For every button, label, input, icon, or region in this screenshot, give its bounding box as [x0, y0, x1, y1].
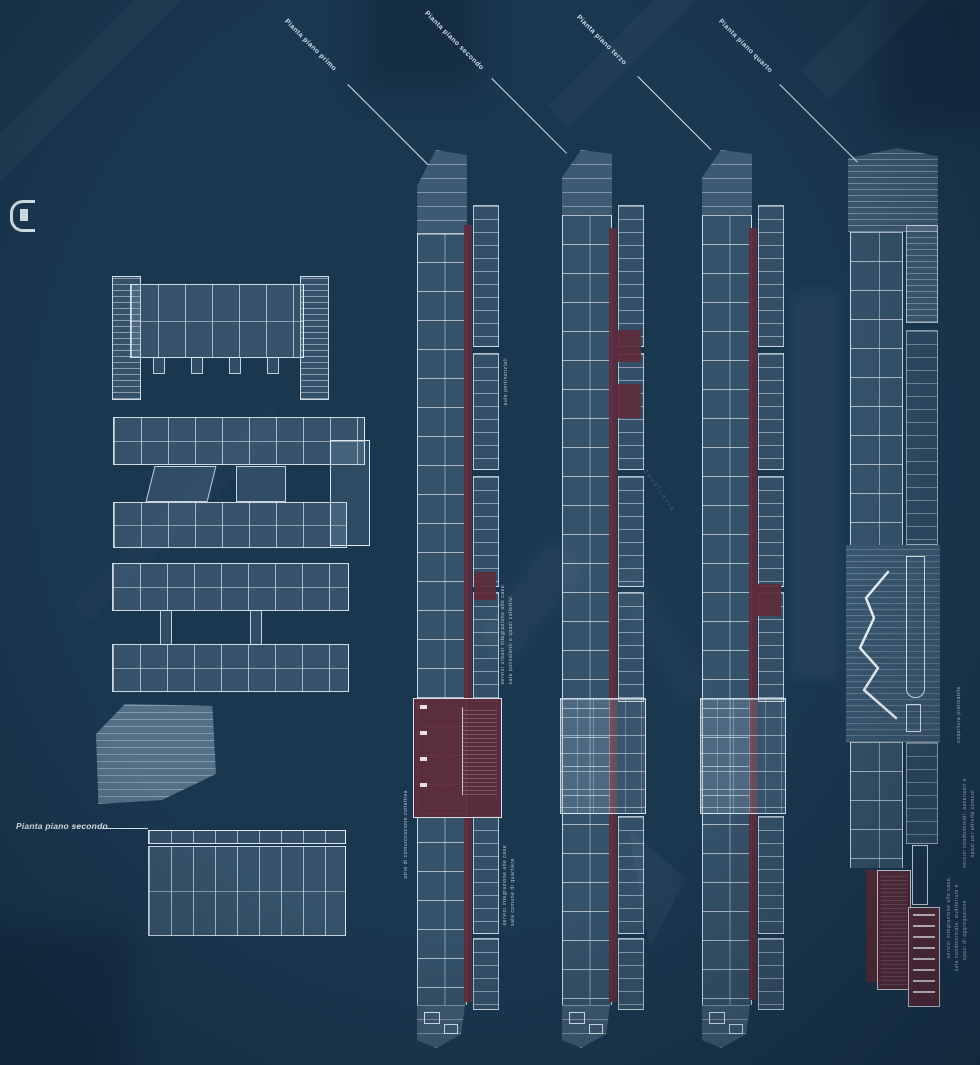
- annotation-roof: copertura praticabile: [956, 686, 962, 743]
- annotation-plan1-upper: aule pertinenziali: [503, 358, 509, 405]
- annotation-plan1-lower-line1: servizi integrazione alle case:: [502, 843, 508, 925]
- annotation-plan4-lower-line3: spazi di aggregazione: [962, 900, 968, 960]
- annotation-plan4-mid-line2: spazi per attività comuni: [970, 790, 976, 857]
- overlay-lines: [0, 0, 980, 1065]
- annotation-plan4-lower-line1: servizi integrazione alle case:: [946, 876, 952, 958]
- annotation-plan1-mid-line1: servizi urbani integrazione alle case:: [500, 583, 506, 685]
- annotation-plan4-lower-line2: sala condominiale, auditorium e: [954, 884, 960, 971]
- annotation-plan1-mid-line2: sale polivalenti e spazi collettivi: [508, 596, 514, 684]
- annotation-plan1-left: atrio di comunicazione collettiva: [403, 790, 409, 879]
- annotation-plan1-lower-line2: sala comune di quartiere: [510, 858, 516, 926]
- roof-ramp-zigzag: [860, 572, 896, 718]
- architectural-drawing-canvas: Pianta piano secondo: [0, 0, 980, 1065]
- annotation-plan4-mid-line1: servizi condominiali: ascensori e: [962, 778, 968, 868]
